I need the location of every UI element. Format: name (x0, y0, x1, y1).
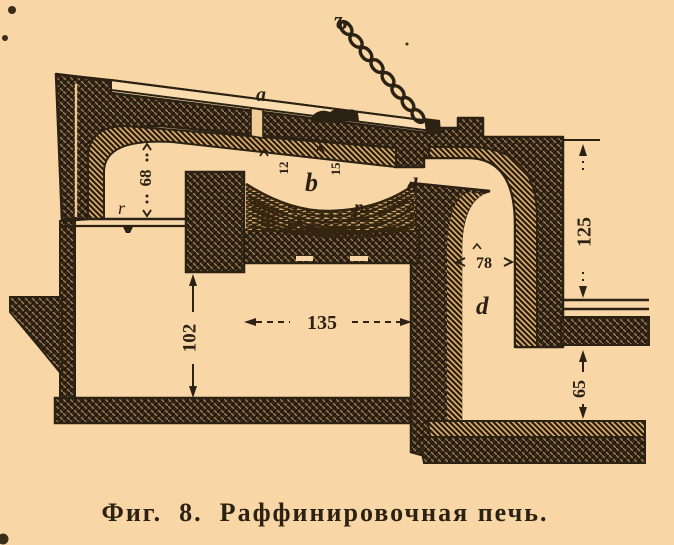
svg-text:68: 68 (136, 170, 155, 187)
svg-text:r: r (118, 198, 126, 218)
svg-text:65: 65 (569, 380, 589, 398)
svg-text:d: d (476, 293, 489, 320)
svg-text:Фиг. 8. Раффинировочная печь: Фиг. 8. Раффинировочная печь. (102, 498, 549, 527)
svg-text:78: 78 (476, 255, 492, 272)
svg-text:b: b (305, 168, 318, 197)
svg-text:ъ: ъ (334, 6, 348, 35)
svg-text:15: 15 (328, 162, 343, 176)
svg-text:125: 125 (574, 217, 596, 247)
svg-text:12: 12 (276, 162, 291, 175)
svg-text:p: p (352, 197, 364, 219)
svg-text:135: 135 (307, 312, 337, 334)
svg-text:d: d (407, 173, 418, 197)
svg-text:102: 102 (179, 324, 200, 353)
svg-text:a: a (256, 84, 266, 106)
